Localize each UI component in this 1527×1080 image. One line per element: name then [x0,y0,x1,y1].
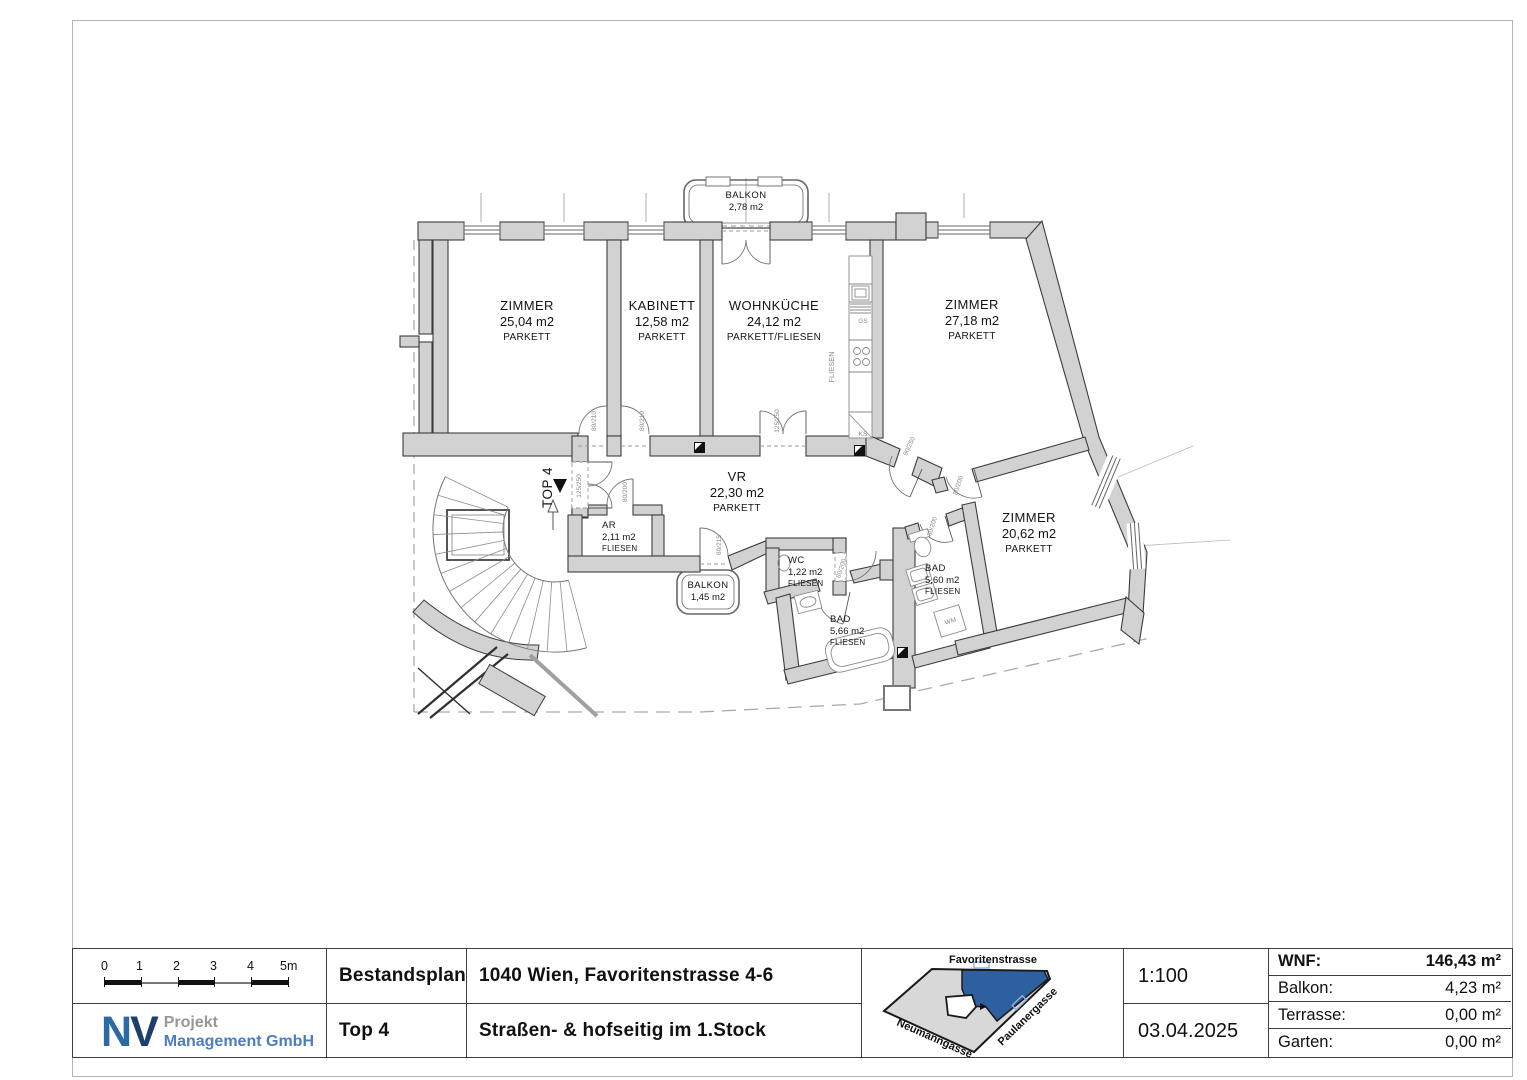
room-area: 1,22 m2 [788,567,822,578]
room-area: 1,45 m2 [691,592,725,603]
staircase [413,477,597,718]
room-area: 24,12 m2 [747,314,801,329]
dimension-label: 80/200 [952,475,965,496]
scale-number: 5m [280,959,297,973]
dimension-label: 90/250 [902,436,917,457]
room-name: AR [602,520,616,531]
scale-number: 2 [173,959,180,973]
entrance-arrow-icon [553,479,567,493]
room-floor: PARKETT [948,331,995,342]
room-label: WOHNKÜCHE24,12 m2PARKETT/FLIESEN [727,298,821,343]
logo-cell: NV Projekt Management GmbH [73,1004,326,1058]
dimension-label: 80/200 [622,482,629,502]
entrance-marker: TOP 4 [540,467,567,508]
street-favoritenstrasse: Favoritenstrasse [949,954,1037,966]
room-area: 22,30 m2 [710,485,764,500]
plan-type: Bestandsplan [327,965,466,987]
room-name: KABINETT [629,298,696,313]
area-label: Terrasse: [1278,1006,1346,1025]
room-label: AR2,11 m2FLIESEN [602,520,637,553]
room-name: BAD [925,563,946,574]
sitemap-cell: Favoritenstrasse Neumanngasse Paulanerga… [861,949,1123,1058]
scale-number: 4 [247,959,254,973]
area-label: WNF: [1278,952,1321,971]
area-row-terrasse: Terrasse: 0,00 m² [1269,1002,1511,1029]
room-name: WC [788,555,805,566]
room-area: 5,60 m2 [925,575,959,586]
room-name: ZIMMER [1002,510,1056,525]
room-area: 2,11 m2 [602,532,636,543]
address-cell: 1040 Wien, Favoritenstrasse 4-6 [466,949,861,1004]
scale-number: 3 [210,959,217,973]
location-cell: Straßen- & hofseitig im 1.Stock [466,1004,861,1058]
area-row-balkon: Balkon: 4,23 m² [1269,976,1511,1003]
room-label: BALKON1,45 m2 [688,580,729,603]
drawing-date: 03.04.2025 [1124,1020,1238,1043]
room-floor: PARKETT [713,503,760,514]
room-floor: PARKETT [638,332,685,343]
room-name: BALKON [688,580,729,591]
dimension-label: 80/200 [926,516,939,537]
scalebar-cell: 0 1 2 3 4 5m [73,949,326,1004]
walls [400,213,1147,688]
dimension-label: 80/210 [591,411,598,431]
drawing-scale: 1:100 [1124,965,1188,988]
date-cell: 03.04.2025 [1123,1004,1268,1058]
room-area: 2,78 m2 [729,202,763,213]
floor-plan: TOP 4 BALKON2,78 m2ZIMMER25,04 m2PARKETT… [0,0,1527,1080]
room-label: BAD5,66 m2FLIESEN [830,614,865,647]
scale-bar: 0 1 2 3 4 5m [101,959,301,995]
room-name: VR [728,469,747,484]
entrance-label: TOP 4 [540,467,555,508]
dimension-label: 125/250 [576,474,583,498]
location: Straßen- & hofseitig im 1.Stock [467,1020,766,1042]
room-label: BAD5,60 m2FLIESEN [925,563,960,596]
logo-line1: Projekt [164,1013,314,1032]
room-area: 25,04 m2 [500,314,554,329]
kitchen-counter [849,256,872,438]
scale-bar-line [104,980,288,986]
room-name: WOHNKÜCHE [729,298,819,313]
room-label: ZIMMER25,04 m2PARKETT [500,298,554,343]
logo-text: Projekt Management GmbH [164,1013,314,1051]
area-value: 0,00 m² [1445,1033,1501,1052]
dimension-label: 125/250 [774,409,781,433]
room-floor: PARKETT [503,332,550,343]
room-label: ZIMMER27,18 m2PARKETT [945,297,999,342]
plan-type-cell: Bestandsplan [326,949,466,1004]
room-area: 27,18 m2 [945,313,999,328]
room-floor: FLIESEN [602,544,637,553]
room-name: ZIMMER [500,298,554,313]
room-label: VR22,30 m2PARKETT [710,469,764,514]
dimension-label: KS [859,431,868,438]
area-row-wnf: WNF: 146,43 m² [1269,949,1511,976]
unit-cell: Top 4 [326,1004,466,1058]
sanitary-fixtures [778,529,966,710]
address: 1040 Wien, Favoritenstrasse 4-6 [467,965,773,987]
area-value: 0,00 m² [1445,1006,1501,1025]
title-block: 0 1 2 3 4 5m NV Projekt Management GmbH [72,948,1513,1058]
room-floor: FLIESEN [925,587,960,596]
room-label: ZIMMER20,62 m2PARKETT [1002,510,1056,555]
dimension-label: GS [858,318,868,325]
room-floor: PARKETT [1005,544,1052,555]
room-floor: FLIESEN [830,638,865,647]
area-row-garten: Garten: 0,00 m² [1269,1029,1511,1056]
unit-label: Top 4 [327,1020,389,1042]
area-value: 4,23 m² [1445,979,1501,998]
areas-cell: WNF: 146,43 m² Balkon: 4,23 m² Terrasse:… [1268,949,1511,1058]
area-value: 146,43 m² [1426,952,1501,971]
dimension-label: 80/210 [639,411,646,431]
room-floor: PARKETT/FLIESEN [727,332,821,343]
room-area: 20,62 m2 [1002,526,1056,541]
scale-number: 1 [136,959,143,973]
logo-nv-mark: NV [101,1013,157,1051]
room-name: BAD [830,614,851,625]
area-label: Balkon: [1278,979,1333,998]
dimension-label: 80/215 [716,535,723,555]
room-label: KABINETT12,58 m2PARKETT [629,298,696,343]
room-floor: FLIESEN [788,579,823,588]
logo-line2: Management GmbH [164,1032,314,1051]
area-label: Garten: [1278,1033,1333,1052]
site-map: Favoritenstrasse Neumanngasse Paulanerga… [862,949,1124,1057]
room-name: BALKON [726,190,767,201]
dimension-label: FLIESEN [827,351,836,382]
room-name: ZIMMER [945,297,999,312]
room-area: 5,66 m2 [830,626,864,637]
company-logo: NV Projekt Management GmbH [101,1013,314,1051]
room-label: WC1,22 m2FLIESEN [788,555,823,588]
scale-cell: 1:100 [1123,949,1268,1004]
scale-number: 0 [101,959,108,973]
room-area: 12,58 m2 [635,314,689,329]
room-label: BALKON2,78 m2 [726,190,767,213]
